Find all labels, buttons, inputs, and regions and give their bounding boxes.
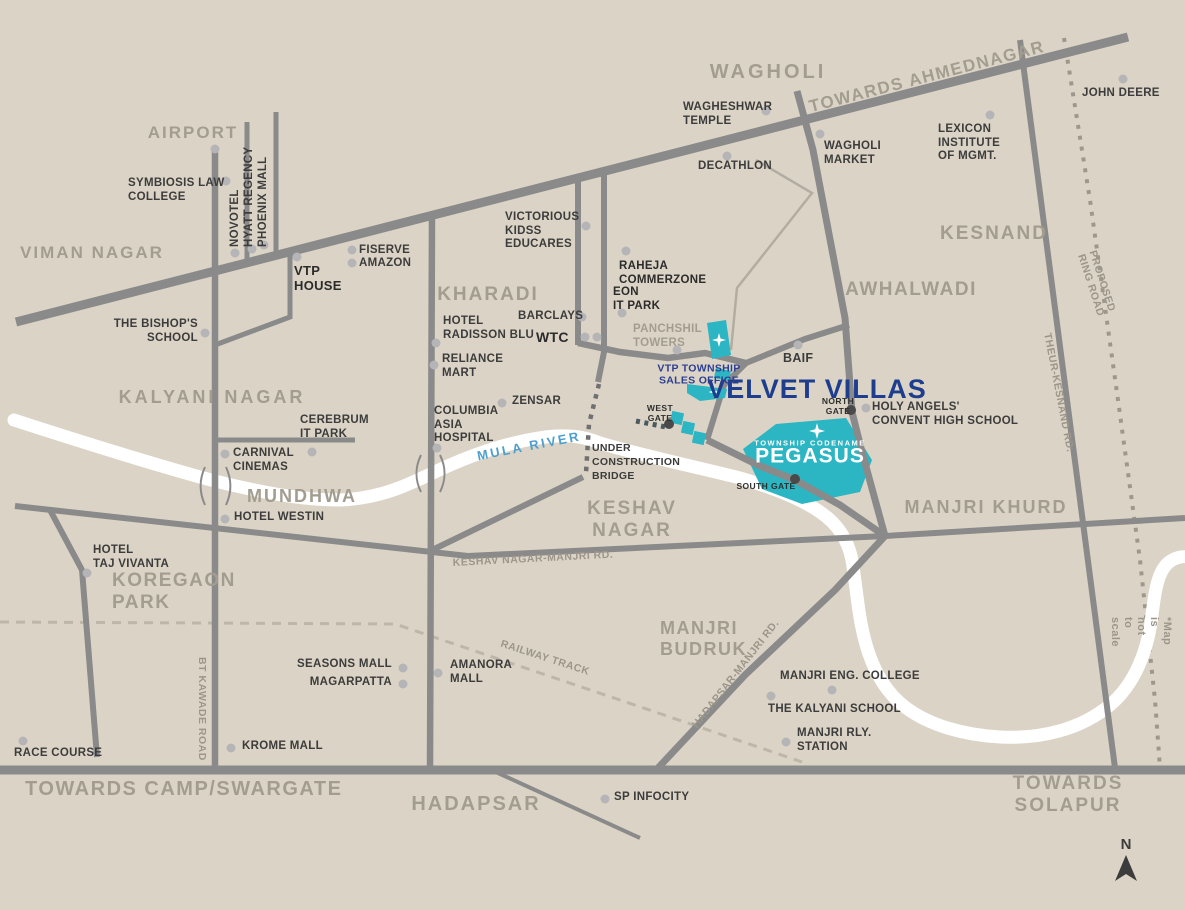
map-base-art: [0, 0, 1185, 910]
township-boundary-line: [731, 160, 812, 350]
west-gate-dotted-path: [636, 421, 666, 427]
under-construction-bridge-line: [586, 384, 599, 473]
compass-n-letter: N: [1108, 836, 1144, 853]
manjri-khurd-road: [885, 518, 1185, 536]
baif-connector-road: [746, 325, 849, 363]
keshav-nagar-manjri-road: [15, 506, 885, 556]
teal-fragment: [714, 368, 731, 381]
compass: N: [1108, 836, 1144, 888]
west-gate-plot-1: [670, 411, 684, 425]
vtp-plots: [670, 320, 731, 445]
theur-kesnand-road: [1020, 40, 1115, 768]
map-canvas: VIMAN NAGARAIRPORTWAGHOLITOWARDS AHMEDNA…: [0, 0, 1185, 910]
bridge-south-road: [428, 477, 583, 552]
hadapsar-manjri-road: [658, 536, 885, 768]
west-gate-plot-2: [681, 421, 695, 435]
nagar-highway: [16, 37, 1128, 322]
koregaon-road: [50, 510, 97, 757]
mula-river-shape: [14, 420, 1185, 737]
west-gate-plot-3: [692, 431, 706, 445]
north-arrow-icon: [1108, 853, 1144, 883]
sp-infocity-road: [487, 768, 640, 838]
kharadi-west-road: [430, 217, 432, 768]
